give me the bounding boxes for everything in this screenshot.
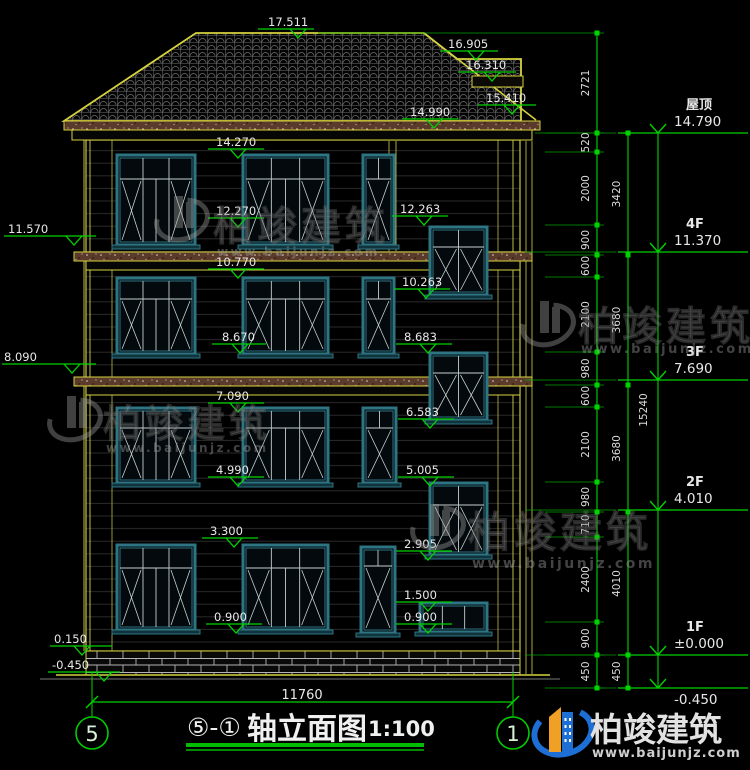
window (112, 545, 200, 634)
elevation-mark-label: 0.150 (54, 632, 87, 646)
watermark-building-icon (67, 396, 76, 428)
elevation-mark-label: 10.263 (402, 275, 442, 289)
dim-value: 450 (611, 661, 623, 681)
dim-value: 980 (580, 358, 592, 378)
floor-elevation: 4.010 (674, 491, 713, 507)
elevation-mark-left: 8.090 (2, 350, 96, 373)
watermark-url-text: www.baijunjz.com (217, 245, 380, 259)
watermark-building-icon (174, 196, 183, 228)
elevation-mark-label: 5.005 (406, 463, 439, 477)
elevation-mark-label: 1.500 (404, 588, 437, 602)
dim-value: 600 (580, 256, 592, 276)
axis-bubble-left-label: 5 (85, 722, 98, 746)
elevation-mark-label: 12.263 (400, 202, 440, 216)
floor-elevation: 11.370 (674, 233, 721, 249)
elevation-mark-label: 4.990 (216, 463, 249, 477)
dim-value: 2000 (580, 175, 592, 202)
dim-total-value: 15240 (638, 393, 650, 426)
watermark-brand-text: 柏竣建筑 (103, 402, 271, 446)
floor-name: 4F (686, 217, 704, 232)
dim-value: 900 (580, 628, 592, 648)
elevation-mark-label: 16.905 (448, 37, 488, 51)
title-scale: 1:100 (368, 717, 435, 741)
dim-value: 900 (580, 230, 592, 250)
logo-url-text: www.baijunjz.com (592, 746, 741, 761)
floor-name: 2F (686, 475, 704, 490)
dim-value: 450 (580, 661, 592, 681)
logo-brand-text: 柏竣建筑 (590, 710, 722, 749)
eave-band (64, 121, 540, 130)
axis-bubble-right-label: 1 (506, 722, 519, 746)
watermark: 柏竣建筑www.baijunjz.com (44, 394, 271, 455)
elevation-mark-label: 7.090 (216, 389, 249, 403)
floor-elevation: -0.450 (674, 692, 718, 708)
dim-value: 3680 (611, 435, 623, 462)
dim-value: 600 (580, 386, 592, 406)
elevation-mark-label: 14.990 (410, 105, 450, 119)
floor-name: 1F (686, 620, 704, 635)
window (358, 408, 401, 487)
window (238, 545, 333, 634)
watermark: 柏竣建筑www.baijunjz.com (517, 299, 750, 357)
elevation-mark-label: 0.900 (214, 610, 247, 624)
watermark-url-text: www.baijunjz.com (581, 342, 750, 357)
cad-elevation-drawing: 17.51116.90516.31015.41014.99014.27012.2… (0, 0, 750, 770)
elevation-mark-label: 17.511 (268, 15, 308, 29)
floor-level-mark: 2F4.010 (525, 475, 748, 510)
window (356, 547, 400, 637)
elevation-mark-label: 8.090 (4, 350, 37, 364)
floor-name: 屋顶 (686, 98, 712, 113)
watermark-building-icon (430, 504, 439, 536)
window (238, 278, 333, 358)
watermark-building-icon (540, 301, 549, 333)
watermark-brand-text: 柏竣建筑 (468, 508, 652, 557)
elevation-mark-label: 14.270 (216, 135, 256, 149)
elevation-mark-label: 0.900 (404, 610, 437, 624)
elevation-mark-label: 15.410 (486, 91, 526, 105)
watermark-url-text: www.baijunjz.com (106, 441, 269, 455)
title-text: 轴立面图 (247, 712, 367, 747)
floor-elevation: ±0.000 (674, 636, 724, 652)
plinth (86, 651, 520, 675)
elevation-mark-label: 3.300 (210, 524, 243, 538)
window (358, 278, 399, 358)
floor-level-mark: -0.450 (560, 679, 748, 708)
elevation-mark-label: 11.570 (8, 222, 48, 236)
logo-building-icon-blue (562, 712, 573, 752)
title-underline (186, 743, 424, 747)
eave-fascia (72, 130, 532, 140)
title-axes: ⑤-① (187, 713, 241, 742)
floor-level-mark: 1F±0.000 (525, 620, 748, 655)
logo-building-icon (549, 707, 561, 752)
bottom-dim-label: 11760 (281, 688, 322, 703)
elevation-mark-left: 11.570 (4, 222, 96, 245)
level-triangle-icon (64, 364, 80, 373)
level-triangle-icon (650, 124, 666, 133)
dim-value: 2100 (580, 431, 592, 458)
dim-value: 520 (580, 132, 592, 152)
watermark-url-text: www.baijunjz.com (472, 556, 655, 572)
floor-level-mark: 4F11.370 (525, 217, 748, 252)
window (112, 278, 200, 358)
floor-level-mark: 屋顶14.790 (535, 98, 748, 133)
dim-value: 980 (580, 487, 592, 507)
elevation-mark-label: 8.683 (404, 330, 437, 344)
floor-elevation: 7.690 (674, 361, 713, 377)
elevation-svg: 17.51116.90516.31015.41014.99014.27012.2… (0, 0, 750, 770)
elevation-mark-label: -0.450 (52, 658, 89, 672)
watermark-brand-text: 柏竣建筑 (213, 204, 389, 250)
dim-value: 3420 (611, 181, 623, 208)
penthouse-fascia (472, 76, 523, 87)
level-triangle-icon (66, 236, 82, 245)
floor-elevation: 14.790 (674, 114, 721, 130)
dim-value: 4010 (611, 570, 623, 597)
elevation-mark-label: 6.583 (406, 405, 439, 419)
elevation-mark-label: 16.310 (466, 58, 506, 72)
drawing-title: ⑤-① 轴立面图 1:100 (186, 712, 435, 750)
brand-logo: 柏竣建筑 www.baijunjz.com (529, 703, 740, 761)
dim-value: 2721 (580, 70, 592, 97)
elevation-mark-label: 8.670 (222, 330, 255, 344)
